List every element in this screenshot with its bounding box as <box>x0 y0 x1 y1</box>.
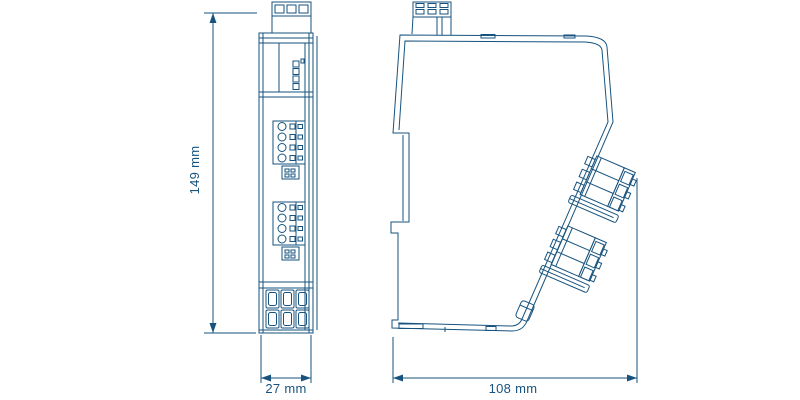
dimension-labels: 149 mm 27 mm 108 mm <box>187 13 637 396</box>
front-view-drawing <box>259 2 317 333</box>
side-connector-lower <box>539 223 610 294</box>
front-bottom-terminal-grid <box>266 290 309 328</box>
technical-drawing-canvas: 149 mm 27 mm 108 mm <box>0 0 800 400</box>
height-dimension-label: 149 mm <box>187 146 202 195</box>
front-screw-terminal-block-1 <box>273 121 305 164</box>
front-screw-terminal-block-2 <box>273 202 305 245</box>
front-small-port-1 <box>282 166 299 179</box>
din-rail-module-dimension-drawing: 149 mm 27 mm 108 mm <box>0 0 800 400</box>
width-dimension-label: 27 mm <box>265 381 306 396</box>
arrowhead-up <box>210 13 217 23</box>
front-small-port-2 <box>282 247 299 260</box>
side-view-drawing <box>391 2 639 332</box>
arrowhead-down <box>210 323 217 333</box>
height-dimension <box>204 13 257 333</box>
front-top-terminal-block <box>272 2 311 33</box>
side-top-terminal-block <box>412 2 451 35</box>
led-indicators <box>293 59 304 90</box>
front-housing-body <box>259 33 317 333</box>
depth-dimension-label: 108 mm <box>489 381 538 396</box>
arrowhead-right <box>627 375 637 382</box>
depth-dimension <box>393 178 637 383</box>
arrowhead-left <box>393 375 403 382</box>
